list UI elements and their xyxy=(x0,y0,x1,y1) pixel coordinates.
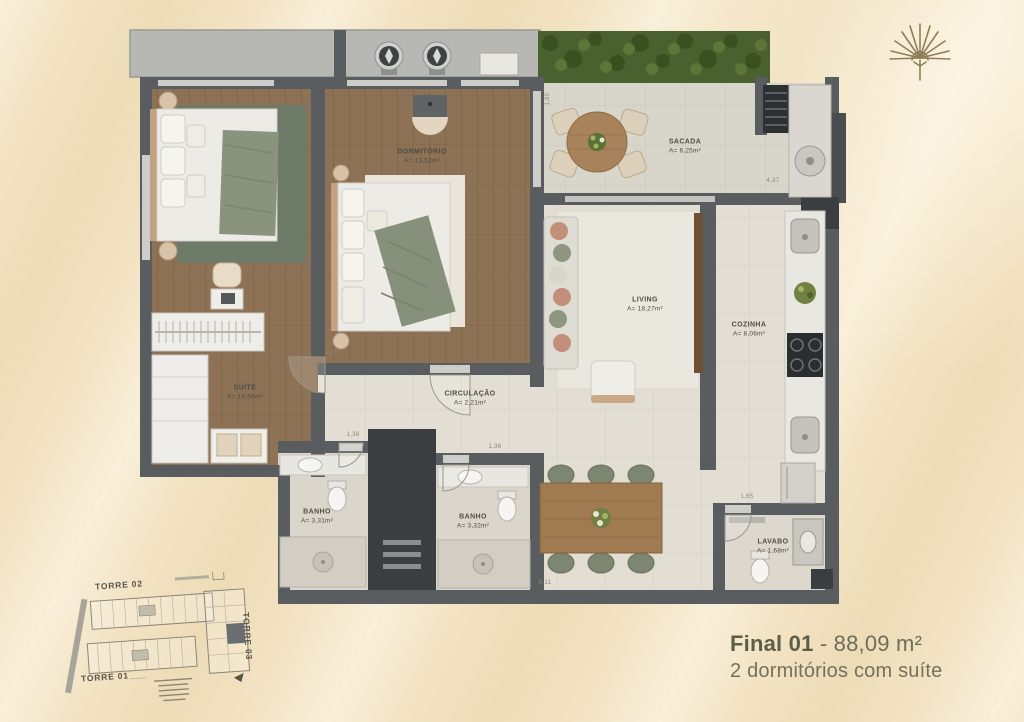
room-label-banho1: BANHO A= 3,31m² xyxy=(301,509,333,526)
room-label-banho2: BANHO A= 3,32m² xyxy=(457,514,489,531)
kitchen-furniture xyxy=(781,211,825,503)
floor-plan: SUÍTE A= 16,66m² DORMITÓRIO A= 13,52m² S… xyxy=(125,25,847,620)
site-key-plan: TORRE 02 TORRE 01 TORRE 03 xyxy=(55,572,290,707)
dimension-label: 5,11 xyxy=(539,580,551,586)
room-label-lavabo: LAVABO A= 1,68m² xyxy=(757,539,789,556)
unit-subtitle: 2 dormitórios com suíte xyxy=(730,660,942,683)
room-label-sacada: SACADA A= 6,25m² xyxy=(669,139,701,156)
site-key-plan-graphic xyxy=(55,572,290,707)
dimension-label: 4,37 xyxy=(767,178,780,184)
dimension-label: 1,38 xyxy=(347,432,360,438)
sunburst-palm-logo-icon xyxy=(878,10,962,90)
dimension-label: 1,36 xyxy=(489,444,502,450)
balcony-hedge xyxy=(538,31,770,83)
unit-title: Final 01 - 88,09 m² xyxy=(730,631,942,657)
dimension-label: 1,65 xyxy=(741,494,754,500)
room-label-dormitorio: DORMITÓRIO A= 13,52m² xyxy=(397,149,447,166)
room-label-suite: SUÍTE A= 16,66m² xyxy=(227,385,263,402)
unit-caption: Final 01 - 88,09 m² 2 dormitórios com su… xyxy=(730,631,942,683)
living-furniture xyxy=(544,211,703,403)
unit-area: - 88,09 m² xyxy=(820,631,922,656)
room-label-circulacao: CIRCULAÇÃO A= 2,21m² xyxy=(444,391,495,408)
dining-furniture xyxy=(540,465,662,573)
room-label-living: LIVING A= 18,27m² xyxy=(627,297,663,314)
dimension-label: 1,90 xyxy=(545,93,551,106)
unit-number: Final 01 xyxy=(730,631,814,656)
service-ledge xyxy=(130,30,540,77)
dimension-label: 3,24 xyxy=(325,350,338,356)
room-label-cozinha: COZINHA A= 8,06m² xyxy=(732,322,767,339)
entry-hall xyxy=(368,429,436,590)
floor-plan-page: SUÍTE A= 16,66m² DORMITÓRIO A= 13,52m² S… xyxy=(0,0,1024,722)
